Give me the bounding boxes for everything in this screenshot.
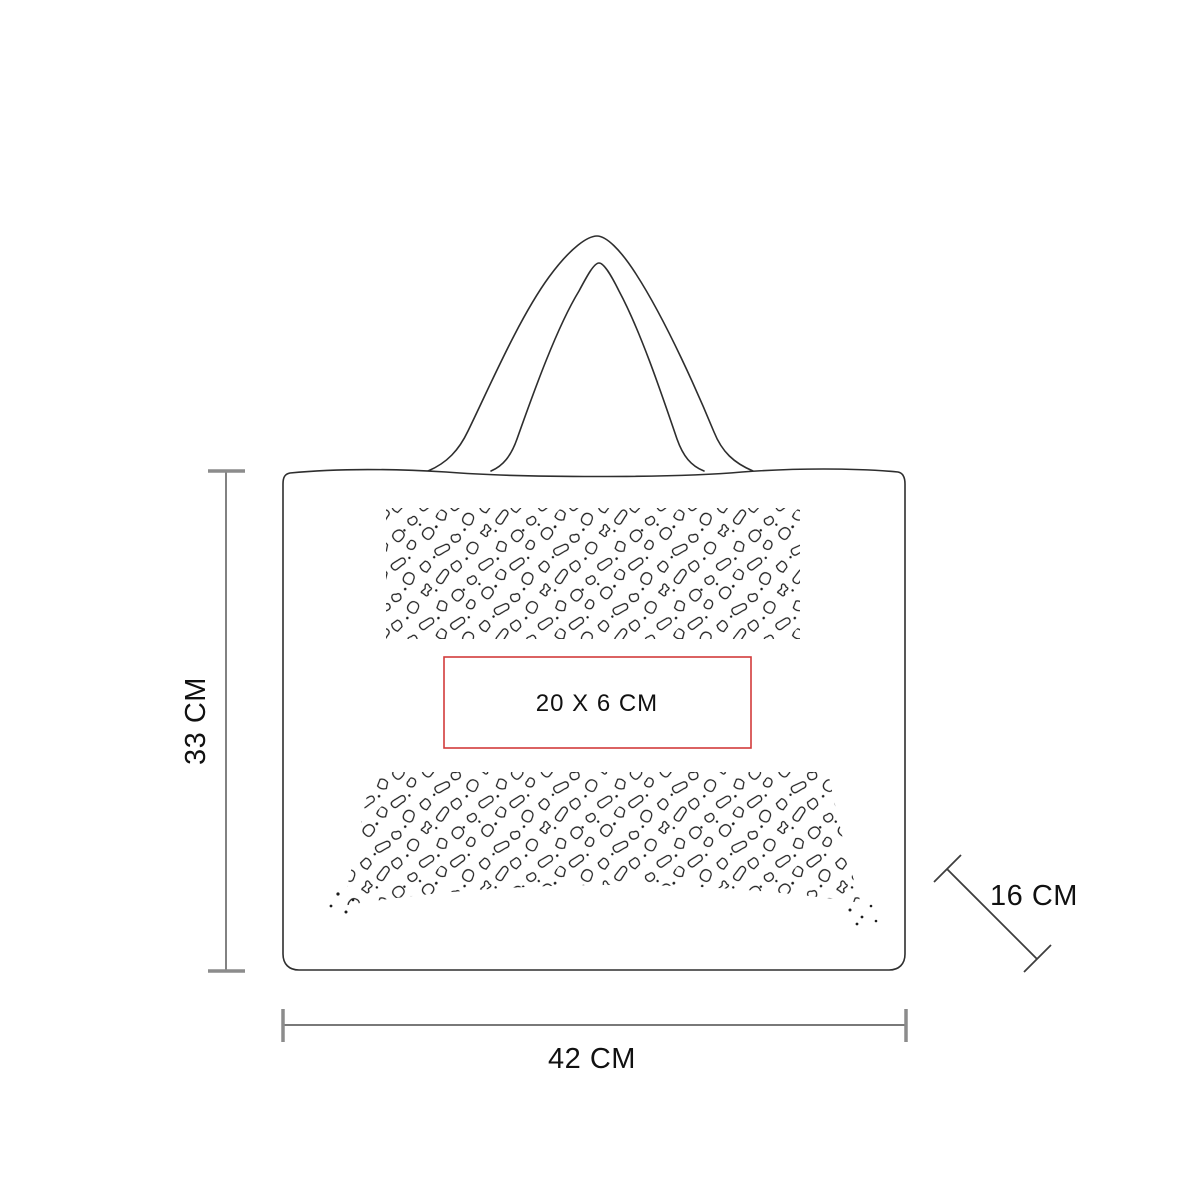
depth-dimension-label: 16 CM [990,880,1078,912]
imprint-area-label: 20 X 6 CM [536,690,658,717]
bag-dimension-figure: 20 X 6 CM 33 CM 42 CM 16 CM [0,0,1200,1200]
height-dimension-label: 33 CM [180,677,212,765]
width-dimension: 42 CM [283,1009,906,1075]
diagram-canvas: 20 X 6 CM 33 CM 42 CM 16 CM [0,0,1200,1200]
depth-dimension: 16 CM [934,855,1078,972]
height-dimension: 33 CM [180,471,245,971]
pattern-band-top [386,508,800,639]
bag-handle-outline [428,236,753,471]
handle-inner-edge [491,263,704,471]
width-dimension-label: 42 CM [548,1043,636,1075]
